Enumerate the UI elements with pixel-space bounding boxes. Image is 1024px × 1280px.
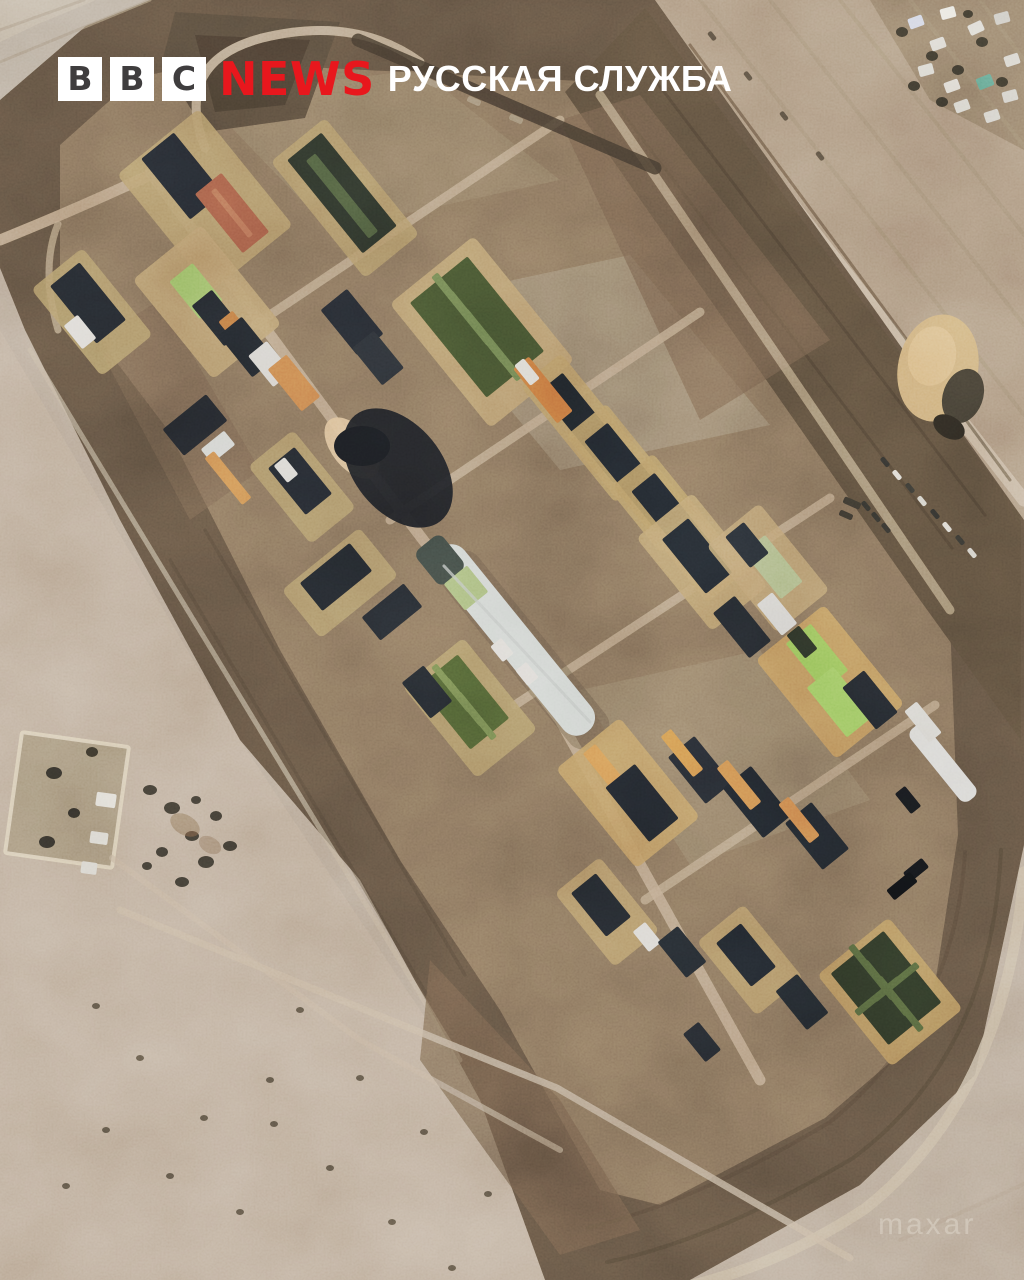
russian-service-label: РУССКАЯ СЛУЖБА	[388, 61, 733, 97]
satellite-scene	[0, 0, 1024, 1280]
bbc-news-brand: B B C NEWS РУССКАЯ СЛУЖБА	[58, 56, 732, 102]
news-wordmark: NEWS	[219, 56, 375, 102]
bbc-logo: B B C	[58, 57, 206, 101]
photo-grain	[0, 0, 1024, 1280]
bbc-block-b1: B	[58, 57, 102, 101]
bbc-block-c: C	[162, 57, 206, 101]
satellite-photo: B B C NEWS РУССКАЯ СЛУЖБА maxar	[0, 0, 1024, 1280]
maxar-watermark: maxar	[878, 1210, 976, 1240]
bbc-block-b2: B	[110, 57, 154, 101]
